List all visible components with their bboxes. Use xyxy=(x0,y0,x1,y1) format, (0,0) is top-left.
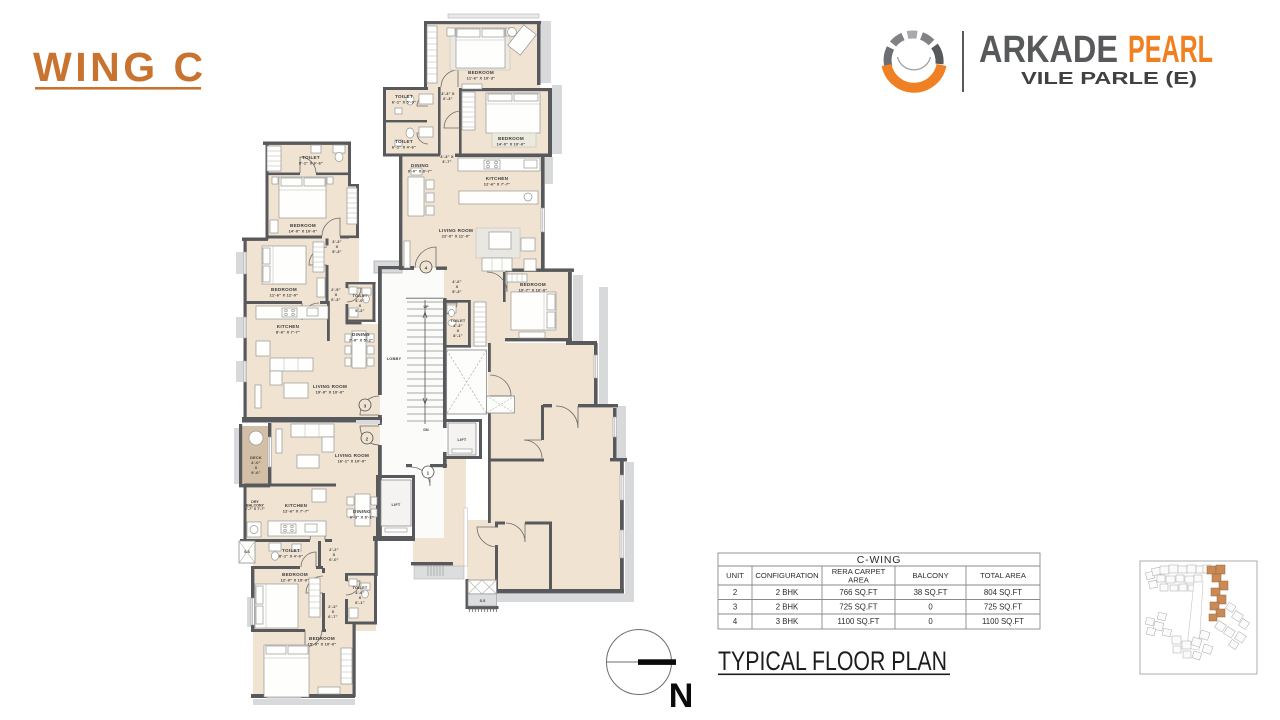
svg-text:KITCHEN: KITCHEN xyxy=(285,503,308,508)
svg-text:S.S: S.S xyxy=(244,550,250,554)
svg-text:8'-6" X 7'-7": 8'-6" X 7'-7" xyxy=(276,330,300,335)
svg-text:LIVING ROOM: LIVING ROOM xyxy=(313,384,347,389)
svg-text:6'-1" X 4'-6": 6'-1" X 4'-6" xyxy=(392,145,416,150)
svg-text:BEDROOM: BEDROOM xyxy=(290,223,316,228)
svg-text:9'-0" X 8'-7": 9'-0" X 8'-7" xyxy=(408,169,432,174)
svg-text:ARKADE: ARKADE xyxy=(979,29,1118,71)
svg-text:6'-1": 6'-1" xyxy=(355,600,364,605)
svg-text:WING C: WING C xyxy=(33,44,207,90)
svg-text:8'-1": 8'-1" xyxy=(453,333,462,338)
svg-text:C-WING: C-WING xyxy=(857,554,901,566)
svg-text:UNIT: UNIT xyxy=(726,571,744,580)
svg-text:12'-6" X 7'-7": 12'-6" X 7'-7" xyxy=(283,509,310,514)
svg-text:6'-0": 6'-0" xyxy=(329,557,338,562)
svg-text:LOBBY: LOBBY xyxy=(387,356,402,361)
svg-text:KITCHEN: KITCHEN xyxy=(486,176,509,181)
svg-text:2: 2 xyxy=(733,588,737,597)
svg-text:BEDROOM: BEDROOM xyxy=(468,70,494,75)
svg-text:19'-9" X 10'-0": 19'-9" X 10'-0" xyxy=(316,390,345,395)
svg-text:8'-1" X 6'-6": 8'-1" X 6'-6" xyxy=(299,161,323,166)
svg-text:5'-3": 5'-3" xyxy=(332,249,341,254)
svg-text:6'-7": 6'-7" xyxy=(328,614,337,619)
svg-text:11'-6" X 12'-0": 11'-6" X 12'-0" xyxy=(270,293,299,298)
svg-text:15'-9" X 10'-0": 15'-9" X 10'-0" xyxy=(308,642,337,647)
svg-text:BEDROOM: BEDROOM xyxy=(271,287,297,292)
svg-text:TOILET: TOILET xyxy=(282,548,300,553)
svg-text:10'-7" X 10'-0": 10'-7" X 10'-0" xyxy=(519,288,548,293)
svg-text:12'-0" X 10'-0": 12'-0" X 10'-0" xyxy=(281,578,310,583)
svg-text:766 SQ.FT: 766 SQ.FT xyxy=(839,588,877,597)
svg-text:804 SQ.FT: 804 SQ.FT xyxy=(984,588,1022,597)
svg-text:725 SQ.FT: 725 SQ.FT xyxy=(984,603,1022,612)
svg-text:1: 1 xyxy=(427,470,430,475)
svg-text:AREA: AREA xyxy=(848,576,870,585)
svg-text:TOILET: TOILET xyxy=(395,139,413,144)
svg-text:0: 0 xyxy=(928,603,933,612)
svg-text:7'-9" X 5'-2": 7'-9" X 5'-2" xyxy=(349,338,373,343)
svg-text:DINING: DINING xyxy=(353,509,371,514)
svg-text:6'-3": 6'-3" xyxy=(331,297,340,302)
svg-text:TYPICAL FLOOR PLAN: TYPICAL FLOOR PLAN xyxy=(718,646,947,676)
svg-text:3 BHK: 3 BHK xyxy=(776,617,799,626)
svg-text:9'-6": 9'-6" xyxy=(251,470,260,475)
svg-text:6'-3": 6'-3" xyxy=(443,96,452,101)
svg-text:KITCHEN: KITCHEN xyxy=(277,324,300,329)
svg-text:2 BHK: 2 BHK xyxy=(776,603,799,612)
svg-text:2: 2 xyxy=(366,436,369,441)
svg-text:N: N xyxy=(669,677,694,715)
svg-text:0: 0 xyxy=(928,617,933,626)
svg-text:DINING: DINING xyxy=(411,163,429,168)
svg-text:2 BHK: 2 BHK xyxy=(776,588,799,597)
svg-text:BEDROOM: BEDROOM xyxy=(520,282,546,287)
svg-text:CONFIGURATION: CONFIGURATION xyxy=(755,571,818,580)
svg-text:UP: UP xyxy=(424,305,430,309)
svg-text:LIFT: LIFT xyxy=(457,437,466,442)
svg-text:22'-0" X 11'-0": 22'-0" X 11'-0" xyxy=(442,234,471,239)
svg-text:TOILET: TOILET xyxy=(302,155,320,160)
svg-text:LIFT: LIFT xyxy=(391,502,400,507)
svg-text:38 SQ.FT: 38 SQ.FT xyxy=(914,588,948,597)
svg-text:LIVING ROOM: LIVING ROOM xyxy=(439,228,473,233)
svg-text:2'-7" X 7'-7": 2'-7" X 7'-7" xyxy=(245,507,265,511)
svg-text:BEDROOM: BEDROOM xyxy=(498,136,524,141)
svg-text:14'-0" X 10'-0": 14'-0" X 10'-0" xyxy=(289,229,318,234)
svg-text:1100 SQ.FT: 1100 SQ.FT xyxy=(982,617,1024,626)
svg-text:LIVING ROOM: LIVING ROOM xyxy=(335,453,369,458)
svg-text:6'-1" X 5'-0": 6'-1" X 5'-0" xyxy=(392,100,416,105)
svg-text:VILE PARLE (E): VILE PARLE (E) xyxy=(1021,68,1197,88)
svg-text:12'-6" X 7'-7": 12'-6" X 7'-7" xyxy=(484,182,511,187)
svg-text:14'-0" X 10'-0": 14'-0" X 10'-0" xyxy=(497,142,526,147)
svg-text:6'-3" X 8'-1": 6'-3" X 8'-1" xyxy=(350,515,374,520)
svg-text:11'-6" X 10'-3": 11'-6" X 10'-3" xyxy=(467,76,496,81)
svg-text:S.S: S.S xyxy=(480,599,486,603)
svg-text:TOTAL AREA: TOTAL AREA xyxy=(980,571,1027,580)
svg-text:4: 4 xyxy=(733,617,738,626)
svg-text:BEDROOM: BEDROOM xyxy=(282,572,308,577)
svg-text:BEDROOM: BEDROOM xyxy=(309,636,335,641)
svg-text:5'-3": 5'-3" xyxy=(452,289,461,294)
svg-text:DN: DN xyxy=(423,428,429,432)
svg-text:725 SQ.FT: 725 SQ.FT xyxy=(839,603,877,612)
svg-text:BALCONY: BALCONY xyxy=(912,571,948,580)
svg-text:PEARL: PEARL xyxy=(1128,29,1213,71)
svg-text:3: 3 xyxy=(364,403,367,408)
svg-text:16'-1" X 10'-0": 16'-1" X 10'-0" xyxy=(338,459,367,464)
svg-text:1100 SQ.FT: 1100 SQ.FT xyxy=(838,617,880,626)
svg-text:3: 3 xyxy=(733,603,737,612)
svg-text:5'-2": 5'-2" xyxy=(355,308,364,313)
svg-text:3'-7": 3'-7" xyxy=(442,159,451,164)
svg-text:DINING: DINING xyxy=(352,332,370,337)
svg-text:TOILET: TOILET xyxy=(395,94,413,99)
svg-text:4: 4 xyxy=(425,265,428,270)
svg-text:8'-1" X 4'-0": 8'-1" X 4'-0" xyxy=(279,554,303,559)
